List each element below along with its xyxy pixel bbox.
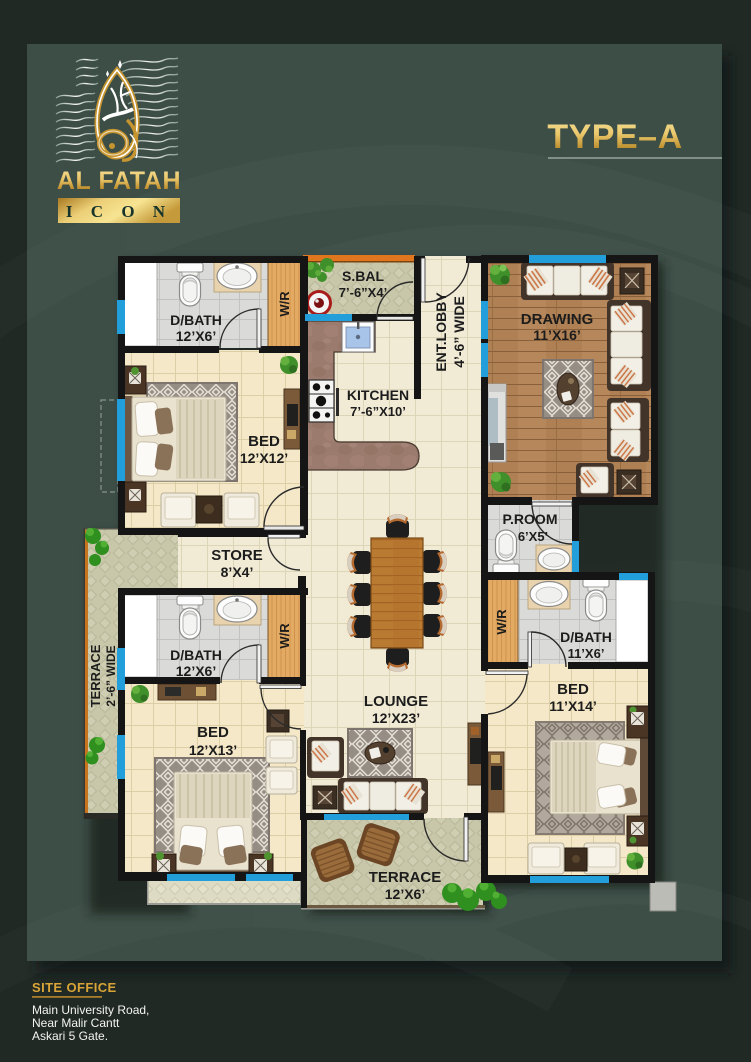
svg-text:W/R: W/R	[494, 609, 509, 635]
svg-text:Near Malir Cantt: Near Malir Cantt	[32, 1016, 120, 1030]
svg-text:BED: BED	[557, 681, 589, 698]
svg-text:7’-6”X10’: 7’-6”X10’	[350, 404, 406, 419]
svg-text:12’X6’: 12’X6’	[176, 328, 216, 344]
svg-text:11’X6’: 11’X6’	[568, 646, 605, 661]
svg-text:TERRACE: TERRACE	[88, 644, 103, 707]
svg-text:D/BATH: D/BATH	[560, 629, 612, 645]
svg-text:12’X23’: 12’X23’	[372, 710, 420, 726]
svg-text:ENT.LOBBY: ENT.LOBBY	[433, 292, 449, 372]
svg-text:12’X6’: 12’X6’	[176, 663, 216, 679]
svg-text:W/R: W/R	[277, 291, 292, 317]
svg-text:TERRACE: TERRACE	[369, 869, 442, 886]
svg-text:BED: BED	[248, 433, 280, 450]
svg-text:DRAWING: DRAWING	[521, 311, 594, 328]
svg-text:LOUNGE: LOUNGE	[364, 693, 428, 710]
svg-text:6’X5’: 6’X5’	[518, 529, 548, 544]
svg-text:STORE: STORE	[211, 547, 262, 564]
svg-text:AL FATAH: AL FATAH	[57, 167, 181, 195]
svg-text:12’X6’: 12’X6’	[385, 886, 425, 902]
svg-text:P.ROOM: P.ROOM	[503, 511, 558, 527]
svg-text:BED: BED	[197, 724, 229, 741]
svg-text:S.BAL: S.BAL	[342, 268, 384, 284]
svg-text:12’X13’: 12’X13’	[189, 742, 237, 758]
svg-text:Askari 5 Gate.: Askari 5 Gate.	[32, 1029, 108, 1043]
svg-text:4’-6” WIDE: 4’-6” WIDE	[451, 296, 467, 368]
svg-text:D/BATH: D/BATH	[170, 647, 222, 663]
svg-text:2’-6” WIDE: 2’-6” WIDE	[104, 645, 118, 706]
svg-text:7’-6”X4’: 7’-6”X4’	[339, 285, 387, 300]
svg-text:11’X16’: 11’X16’	[533, 327, 581, 343]
svg-text:11’X14’: 11’X14’	[549, 698, 597, 714]
svg-text:12’X12’: 12’X12’	[240, 450, 288, 466]
svg-text:KITCHEN: KITCHEN	[347, 387, 409, 403]
svg-text:SITE OFFICE: SITE OFFICE	[32, 980, 117, 995]
svg-text:I C O N: I C O N	[66, 202, 172, 221]
svg-text:Main University Road,: Main University Road,	[32, 1003, 149, 1017]
svg-text:TYPE–A: TYPE–A	[547, 118, 682, 156]
svg-text:8’X4’: 8’X4’	[221, 564, 254, 580]
svg-text:D/BATH: D/BATH	[170, 312, 222, 328]
svg-text:W/R: W/R	[277, 623, 292, 649]
